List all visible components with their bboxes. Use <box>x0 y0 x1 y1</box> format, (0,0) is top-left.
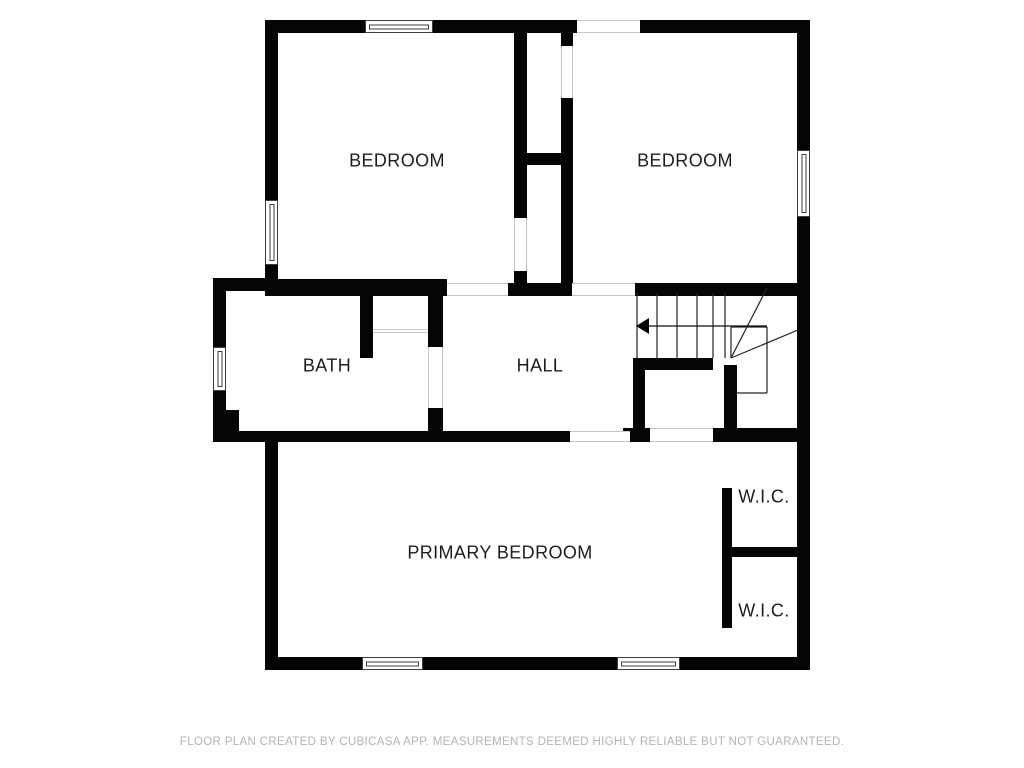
window-pane <box>621 661 676 666</box>
door-opening <box>447 283 508 296</box>
staircase <box>633 283 810 442</box>
room-label-bedroom-right: BEDROOM <box>637 151 733 172</box>
stairs-direction-arrow-icon <box>636 318 767 334</box>
wall-segment <box>265 279 447 296</box>
wall-segment <box>514 271 527 291</box>
door-opening <box>561 46 573 98</box>
door-opening <box>373 329 428 333</box>
floor-plan: BEDROOM BEDROOM BATH HALL PRIMARY BEDROO… <box>0 0 1024 768</box>
window-pane <box>369 24 429 29</box>
wall-segment <box>722 488 732 628</box>
wall-segment <box>514 153 573 165</box>
wall-segment <box>514 33 527 218</box>
door-opening <box>570 431 630 442</box>
room-label-bedroom-left: BEDROOM <box>349 151 445 172</box>
stair-treads <box>637 288 798 393</box>
door-opening <box>577 20 640 33</box>
window-pane <box>269 204 274 261</box>
window-pane <box>366 661 419 666</box>
room-label-bath: BATH <box>303 356 351 377</box>
room-label-wic-bottom: W.I.C. <box>738 601 789 622</box>
door-opening <box>572 283 635 296</box>
window <box>362 657 423 670</box>
wall-segment <box>561 33 573 46</box>
room-label-wic-top: W.I.C. <box>738 487 789 508</box>
window <box>617 657 680 670</box>
window <box>365 20 433 33</box>
wall-segment <box>265 441 278 670</box>
wall-segment <box>213 431 570 442</box>
window <box>265 200 278 265</box>
wall-segment <box>428 283 443 347</box>
room-label-primary-bedroom: PRIMARY BEDROOM <box>407 543 592 564</box>
door-opening <box>514 218 527 271</box>
wall-segment <box>561 98 573 296</box>
wall-segment <box>722 547 810 557</box>
window <box>797 150 810 217</box>
window <box>213 347 226 391</box>
wall-segment <box>360 283 373 358</box>
window-pane <box>217 351 222 387</box>
room-label-hall: HALL <box>517 356 564 377</box>
wall-segment <box>265 657 810 670</box>
window-pane <box>801 154 806 213</box>
footer-disclaimer: FLOOR PLAN CREATED BY CUBICASA APP. MEAS… <box>180 736 844 748</box>
door-opening <box>428 347 443 408</box>
wall-segment <box>640 20 810 33</box>
